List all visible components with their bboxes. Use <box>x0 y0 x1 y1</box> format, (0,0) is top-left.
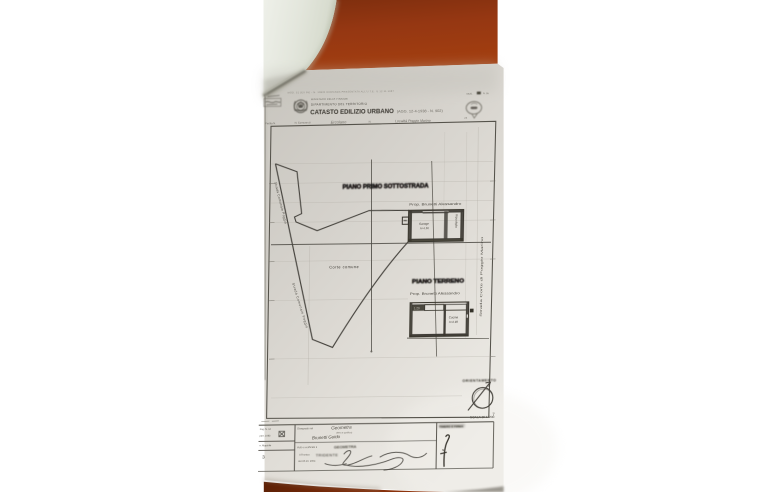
svg-text:Prop. Brunetti Alessandro: Prop. Brunetti Alessandro <box>410 291 460 296</box>
svg-text:MOD.: MOD. <box>467 93 474 96</box>
svg-text:n. Mappale: n. Mappale <box>259 444 272 447</box>
svg-text:1.20: 1.20 <box>414 306 420 310</box>
svg-text:A=2.28: A=2.28 <box>449 320 458 324</box>
svg-text:TIMBRO E FIRMA: TIMBRO E FIRMA <box>439 424 463 428</box>
svg-text:MINISTERO DELLE FINANZE: MINISTERO DELLE FINANZE <box>311 98 348 102</box>
svg-text:Fog. N. 12: Fog. N. 12 <box>260 428 272 431</box>
svg-text:del 15.10. 2004: del 15.10. 2004 <box>298 460 316 463</box>
svg-text:GEOMETRA: GEOMETRA <box>334 444 357 450</box>
svg-text:Località Poggio Marino: Località Poggio Marino <box>395 119 431 124</box>
svg-text:CATASTO EDILIZIO URBANO: CATASTO EDILIZIO URBANO <box>310 108 394 116</box>
svg-text:Disegnato nel: Disegnato nel <box>297 426 313 430</box>
svg-text:Corte comune: Corte comune <box>329 265 359 269</box>
svg-text:Geometra: Geometra <box>331 425 352 431</box>
svg-text:DIPARTIMENTO DEL TERRITORIO: DIPARTIMENTO DEL TERRITORIO <box>311 102 368 107</box>
svg-text:(AGG. 12-4-1938 - N. 902): (AGG. 12-4-1938 - N. 902) <box>397 109 443 114</box>
svg-text:N. 55: N. 55 <box>483 92 489 95</box>
svg-text:Ercolano: Ercolano <box>331 119 348 124</box>
svg-text:N. Comune di: N. Comune di <box>295 120 311 124</box>
svg-text:ORIENTAMENTO: ORIENTAMENTO <box>462 378 496 383</box>
svg-text:Cucina: Cucina <box>449 315 459 319</box>
svg-text:TRIDENTE: TRIDENTE <box>316 452 339 457</box>
svg-text:Visto e verificato il: Visto e verificato il <box>297 446 318 449</box>
svg-text:Prop. Brunetti Alessandro: Prop. Brunetti Alessandro <box>409 202 461 207</box>
svg-text:Il Tecnico: Il Tecnico <box>299 453 310 456</box>
svg-text:N.: N. <box>369 119 372 123</box>
svg-text:Partita N.: Partita N. <box>265 121 276 125</box>
svg-text:part. 1083: part. 1083 <box>260 434 271 437</box>
svg-text:A=4.60: A=4.60 <box>420 226 429 230</box>
svg-text:Ripostiglio: Ripostiglio <box>454 214 458 228</box>
svg-text:SCALA DI 1:200: SCALA DI 1:200 <box>470 415 495 419</box>
